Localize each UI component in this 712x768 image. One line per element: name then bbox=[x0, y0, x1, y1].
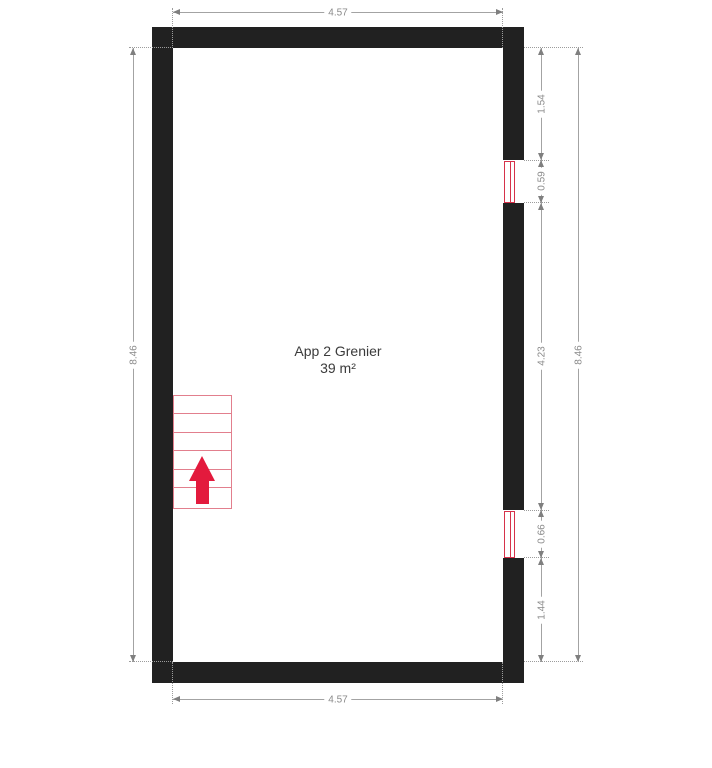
wall-right-middle bbox=[503, 203, 524, 510]
dimension-value-chain-2: 0.59 bbox=[537, 167, 548, 194]
dimension-arrow bbox=[538, 655, 544, 662]
extension-line bbox=[524, 510, 549, 511]
dimension-arrow bbox=[130, 655, 136, 662]
dimension-value-chain-1: 1.54 bbox=[537, 90, 548, 117]
wall-right-upper bbox=[503, 27, 524, 160]
dimension-arrow bbox=[538, 48, 544, 55]
dimension-value-top-width: 4.57 bbox=[324, 8, 351, 19]
dimension-arrow bbox=[575, 655, 581, 662]
dimension-value-left-height: 8.46 bbox=[129, 341, 140, 368]
stair-direction-up-arrow-icon bbox=[189, 456, 215, 481]
dimension-value-chain-4: 0.66 bbox=[537, 520, 548, 547]
dimension-arrow bbox=[538, 503, 544, 510]
dimension-arrow bbox=[173, 696, 180, 702]
dimension-arrow bbox=[538, 153, 544, 160]
wall-right-lower bbox=[503, 558, 524, 683]
room-label: App 2 Grenier 39 m² bbox=[173, 343, 503, 377]
window-pane-line bbox=[510, 512, 511, 557]
dimension-arrow bbox=[173, 9, 180, 15]
dimension-value-right-height: 8.46 bbox=[574, 341, 585, 368]
dimension-arrow bbox=[538, 510, 544, 517]
dimension-arrow bbox=[496, 9, 503, 15]
stair-direction-up-arrow-shaft bbox=[196, 480, 209, 504]
dimension-arrow bbox=[538, 551, 544, 558]
stair-tread bbox=[174, 450, 231, 451]
dimension-arrow bbox=[130, 48, 136, 55]
stair-tread bbox=[174, 413, 231, 414]
dimension-arrow bbox=[575, 48, 581, 55]
floor-plan: App 2 Grenier 39 m² 4.57 4.57 8.46 8.46 … bbox=[0, 0, 712, 768]
dimension-arrow bbox=[496, 696, 503, 702]
extension-line bbox=[524, 557, 549, 558]
dimension-arrow bbox=[538, 160, 544, 167]
extension-line bbox=[524, 202, 549, 203]
staircase bbox=[173, 395, 232, 509]
window-upper-right bbox=[504, 161, 515, 203]
dimension-arrow bbox=[538, 558, 544, 565]
window-pane-line bbox=[510, 162, 511, 202]
dimension-value-bottom-width: 4.57 bbox=[324, 695, 351, 706]
wall-bottom bbox=[152, 662, 524, 683]
room-name: App 2 Grenier bbox=[173, 343, 503, 360]
dimension-arrow bbox=[538, 203, 544, 210]
extension-line bbox=[524, 160, 549, 161]
dimension-arrow bbox=[538, 196, 544, 203]
wall-left bbox=[152, 27, 173, 683]
stair-tread bbox=[174, 432, 231, 433]
wall-top bbox=[152, 27, 524, 48]
dimension-value-chain-5: 1.44 bbox=[537, 596, 548, 623]
window-lower-right bbox=[504, 511, 515, 558]
dimension-value-chain-3: 4.23 bbox=[537, 342, 548, 369]
room-area: 39 m² bbox=[173, 360, 503, 377]
